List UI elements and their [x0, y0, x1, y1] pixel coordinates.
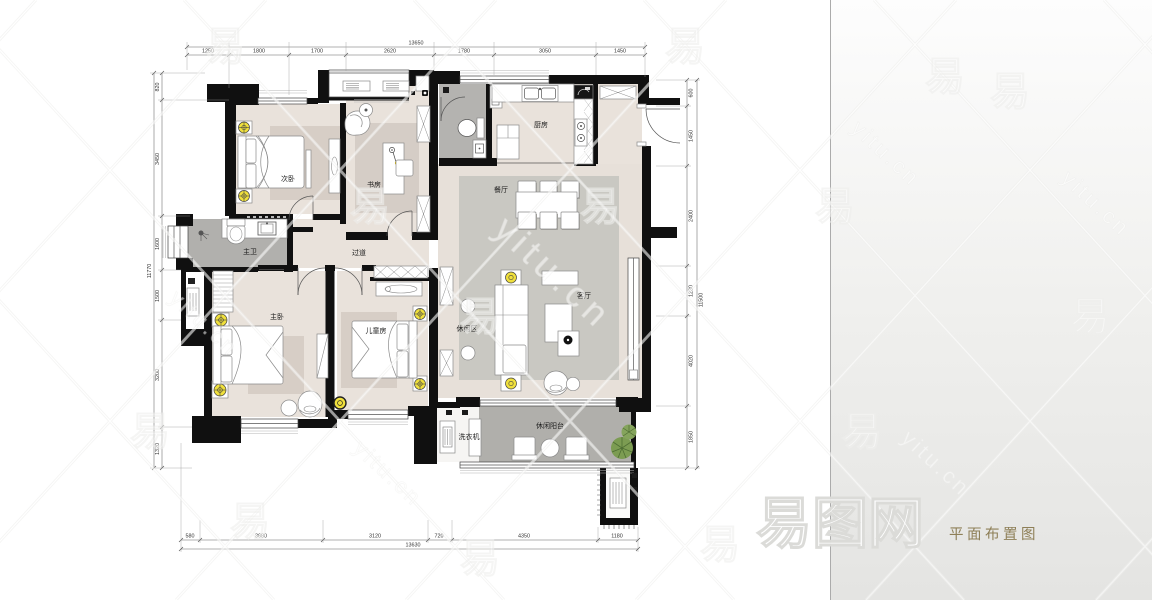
- svg-text:次卧: 次卧: [281, 174, 295, 183]
- svg-text:易: 易: [665, 25, 705, 69]
- svg-text:易图网: 易图网: [756, 492, 924, 555]
- svg-text:易: 易: [230, 500, 270, 544]
- svg-text:易: 易: [460, 537, 500, 581]
- svg-text:1450: 1450: [614, 49, 626, 55]
- svg-text:11500: 11500: [699, 293, 705, 308]
- svg-text:洗衣机: 洗衣机: [459, 432, 480, 441]
- svg-text:1500: 1500: [155, 290, 161, 302]
- svg-text:易: 易: [580, 185, 620, 229]
- svg-text:820: 820: [155, 83, 161, 92]
- svg-text:易: 易: [990, 70, 1030, 114]
- svg-text:1600: 1600: [155, 238, 161, 250]
- svg-text:1700: 1700: [311, 49, 323, 55]
- svg-text:4350: 4350: [518, 534, 530, 540]
- svg-text:1180: 1180: [611, 534, 623, 540]
- svg-text:4020: 4020: [689, 355, 695, 367]
- svg-text:1850: 1850: [689, 431, 695, 443]
- svg-text:易: 易: [925, 55, 965, 99]
- svg-text:13650: 13650: [409, 41, 424, 47]
- svg-text:过道: 过道: [352, 248, 366, 257]
- svg-text:580: 580: [186, 534, 195, 540]
- svg-text:13630: 13630: [406, 543, 421, 549]
- svg-text:1800: 1800: [253, 49, 265, 55]
- svg-text:3120: 3120: [369, 534, 381, 540]
- svg-text:3050: 3050: [539, 49, 551, 55]
- svg-text:厨房: 厨房: [534, 120, 548, 129]
- svg-text:11770: 11770: [147, 264, 153, 279]
- svg-text:易: 易: [1070, 295, 1110, 339]
- svg-text:2620: 2620: [384, 49, 396, 55]
- svg-text:易: 易: [460, 295, 500, 339]
- svg-text:600: 600: [689, 89, 695, 98]
- svg-text:主卫: 主卫: [243, 247, 257, 256]
- svg-text:易: 易: [815, 185, 855, 229]
- svg-text:1450: 1450: [689, 130, 695, 142]
- svg-text:主卧: 主卧: [270, 312, 284, 321]
- svg-text:3450: 3450: [155, 153, 161, 165]
- svg-text:易: 易: [205, 25, 245, 69]
- svg-text:易: 易: [130, 410, 170, 454]
- svg-text:儿童房: 儿童房: [366, 326, 387, 335]
- svg-text:2400: 2400: [689, 210, 695, 222]
- svg-text:易: 易: [842, 410, 882, 454]
- svg-text:易: 易: [700, 523, 740, 567]
- svg-text:休闲阳台: 休闲阳台: [536, 421, 564, 430]
- svg-text:平面布置图: 平面布置图: [949, 526, 1039, 543]
- svg-text:易: 易: [350, 185, 390, 229]
- svg-text:餐厅: 餐厅: [494, 185, 508, 194]
